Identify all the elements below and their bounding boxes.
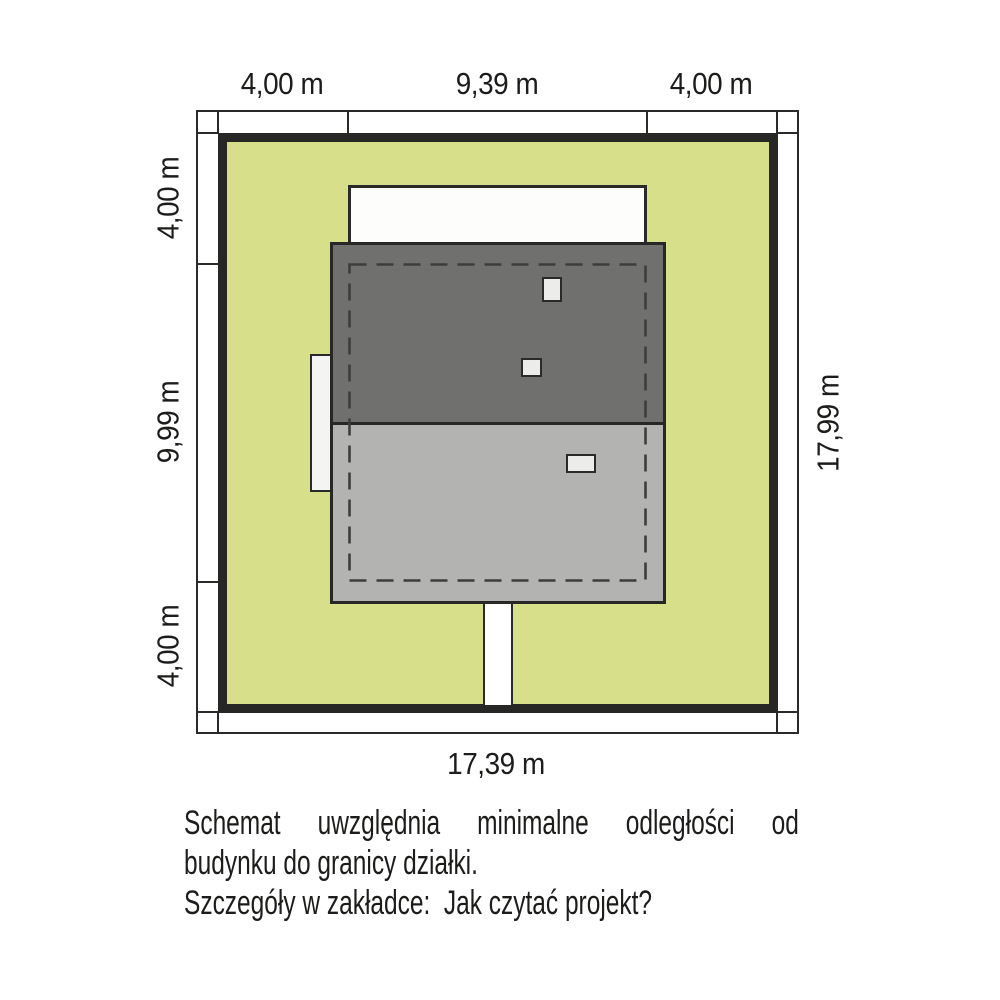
dimension-tick [776,110,778,133]
dim-label-left-top: 4,00 m [153,157,184,240]
dimension-tick [347,110,349,133]
dimension-tick [196,581,218,583]
dimension-tick [217,110,219,133]
dim-label-left-middle: 9,99 m [153,381,184,464]
dimension-tick [196,711,218,713]
terrace [348,185,647,247]
note-line-1: Schemat uwzględnia minimalne odległości … [184,803,799,843]
dimension-tick [196,263,218,265]
dimension-tick [196,132,218,134]
dim-label-left-bottom: 4,00 m [153,605,184,688]
dim-label-top-left: 4,00 m [241,68,324,99]
dim-label-top-right: 4,00 m [670,68,753,99]
dim-label-right: 17,99 m [813,374,844,472]
chimney [566,454,596,473]
building-footprint-dashed [348,263,647,582]
garden-path [483,602,513,705]
roof-window [521,358,542,377]
dimension-tick [778,711,799,713]
site-plan-canvas: 4,00 m 9,39 m 4,00 m 4,00 m 9,99 m 4,00 … [0,0,1000,1000]
dimension-tick [776,713,778,734]
roof-window [542,277,562,302]
note-line-3: Szczegóły w zakładce: Jak czytać projekt… [184,883,799,923]
dimension-tick [646,110,648,133]
dimension-tick [778,132,799,134]
notes-block: Schemat uwzględnia minimalne odległości … [184,803,799,923]
note-line-2: budynku do granicy działki. [184,843,799,883]
dim-label-bottom: 17,39 m [447,748,545,779]
dim-label-top-center: 9,39 m [456,68,539,99]
dimension-tick [217,713,219,734]
